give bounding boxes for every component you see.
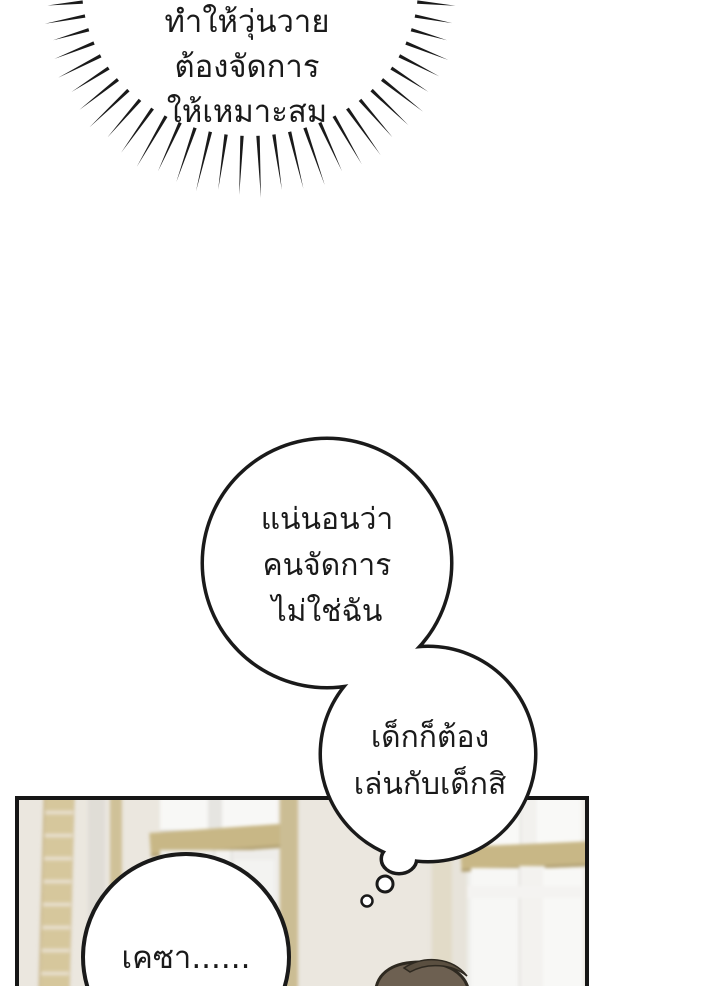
window-right xyxy=(467,796,585,986)
window-pane xyxy=(160,796,208,832)
burst-ray xyxy=(218,134,228,189)
thought-top-line-2: คนจัดการ xyxy=(207,543,447,589)
burst-ray xyxy=(303,127,324,185)
burst-ray xyxy=(399,54,440,76)
wall-stripe-pale xyxy=(432,796,452,986)
burst-ray xyxy=(415,14,453,23)
burst-ray xyxy=(176,127,196,182)
burst-ray xyxy=(239,136,244,195)
thought-top-line-3: ไม่ใช่ฉัน xyxy=(207,589,447,635)
burst-ray xyxy=(54,41,94,58)
burst-ray xyxy=(417,0,455,5)
window-frame-bar xyxy=(208,796,222,832)
burst-ray xyxy=(47,0,82,5)
thought-bubble-top-text: แน่นอนว่า คนจัดการ ไม่ใช่ฉัน xyxy=(207,497,447,635)
burst-ray xyxy=(405,41,448,60)
thought-top-line-1: แน่นอนว่า xyxy=(207,497,447,543)
keza-line: เคซา...... xyxy=(84,936,288,980)
window-mullion xyxy=(519,866,545,986)
ladder-shelf xyxy=(38,796,74,986)
burst-ray xyxy=(196,131,212,191)
thought-bottom-line-2: เล่นกับเด็กสิ xyxy=(325,761,535,808)
speech-bubble-keza-text: เคซา...... xyxy=(84,936,288,980)
burst-ray xyxy=(256,136,261,198)
burst-ray xyxy=(53,28,89,40)
burst-ray xyxy=(288,131,303,188)
window-pane xyxy=(537,796,581,846)
burst-ray xyxy=(45,14,86,23)
burst-line-1: ทำให้วุ่นวาย xyxy=(95,0,399,45)
burst-line-2: ต้องจัดการ xyxy=(95,45,399,90)
thought-bottom-line-1: เด็กก็ต้อง xyxy=(325,714,535,761)
burst-bubble-text: ทำให้วุ่นวาย ต้องจัดการ ให้เหมาะสม xyxy=(95,0,399,135)
window-frame-bar xyxy=(467,886,585,898)
burst-ray xyxy=(272,134,282,189)
burst-line-3: ให้เหมาะสม xyxy=(95,90,399,135)
burst-ray xyxy=(411,28,447,40)
comic-page: ทำให้วุ่นวาย ต้องจัดการ ให้เหมาะสม แน่นอ… xyxy=(0,0,720,986)
thought-bubble-bottom-text: เด็กก็ต้อง เล่นกับเด็กสิ xyxy=(325,714,535,808)
